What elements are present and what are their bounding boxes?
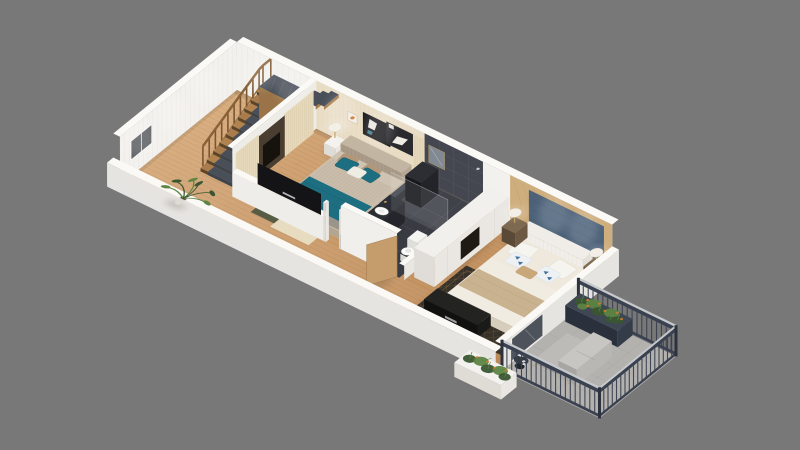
- floor-plan-render: [0, 0, 800, 450]
- apartment-3d-floor-plan: [0, 0, 800, 450]
